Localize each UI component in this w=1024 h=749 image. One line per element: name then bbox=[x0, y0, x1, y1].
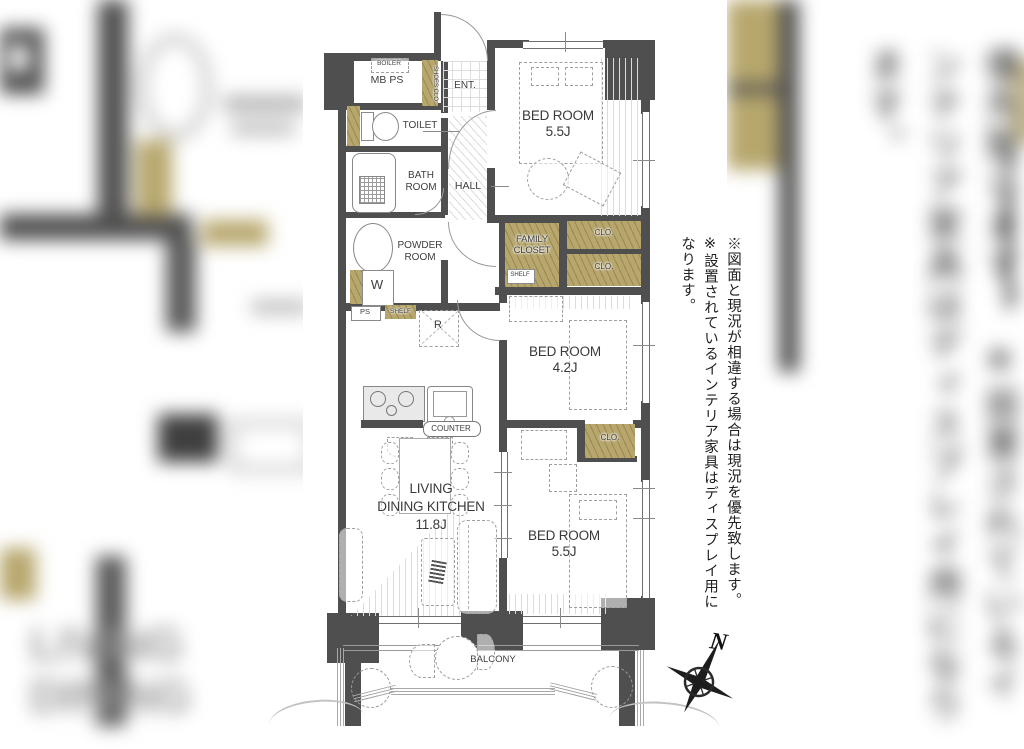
planting-bush bbox=[351, 668, 391, 708]
stove-burner bbox=[398, 391, 414, 407]
blur-wall bbox=[727, 84, 779, 94]
powder-room-label: POWDER ROOM bbox=[387, 240, 453, 263]
stove bbox=[363, 386, 425, 422]
door-tick bbox=[494, 472, 512, 473]
blur-notes-text: ※図面と現況が相違する場合は現況を優先致します。 ※設置されているインテリア家具… bbox=[855, 46, 1024, 726]
hall-label: HALL bbox=[443, 180, 493, 192]
window-tick bbox=[633, 345, 655, 346]
blur-text-blob bbox=[250, 300, 310, 314]
blur-closet bbox=[136, 140, 172, 216]
bedroom3-label: BED ROOM 5.5J bbox=[499, 528, 629, 559]
leader-line bbox=[423, 131, 459, 132]
wall-segment bbox=[507, 420, 583, 428]
bedroom3-size: 5.5J bbox=[499, 544, 629, 560]
background-blur-right: ※図面と現況が相違する場合は現況を優先致します。 ※設置されているインテリア家具… bbox=[727, 0, 1024, 726]
wall-segment bbox=[441, 118, 448, 215]
entrance-label: ENT. bbox=[443, 80, 487, 92]
note-line-2: ※設置されているインテリア家具はディスプレイ用になります。 bbox=[679, 236, 718, 610]
window-tick bbox=[633, 488, 655, 489]
sofa bbox=[457, 520, 497, 614]
window bbox=[642, 480, 650, 598]
washer-panel bbox=[350, 270, 362, 304]
wall-segment bbox=[338, 146, 445, 152]
blur-closet bbox=[0, 548, 36, 600]
leader-line bbox=[491, 186, 509, 187]
dining-chair bbox=[381, 442, 399, 464]
bedroom1-size: 5.5J bbox=[491, 124, 625, 140]
closet-top-2-label: CLO. bbox=[567, 262, 641, 271]
bedroom2-size: 4.2J bbox=[503, 360, 627, 376]
bedroom1-label: BED ROOM 5.5J bbox=[491, 108, 625, 139]
blur-toilet bbox=[138, 34, 212, 140]
wall-segment bbox=[495, 287, 650, 295]
family-closet-label: FAMILY CLOSET bbox=[499, 235, 565, 257]
wall-segment bbox=[441, 260, 448, 311]
tv-remote bbox=[428, 560, 447, 584]
closet-bottom-label: CLO. bbox=[585, 433, 635, 442]
window bbox=[523, 616, 601, 624]
window bbox=[523, 41, 603, 49]
powder-label-line1: POWDER bbox=[387, 240, 453, 252]
side-table bbox=[549, 464, 577, 492]
counter-edge bbox=[361, 420, 423, 428]
blur-stove bbox=[158, 414, 218, 462]
background-blur-left: LIVING DINING bbox=[0, 0, 310, 726]
wall-segment bbox=[641, 401, 650, 482]
window bbox=[379, 616, 461, 624]
blur-closet bbox=[727, 94, 779, 170]
planting-bush bbox=[591, 666, 633, 708]
balcony-label: BALCONY bbox=[453, 655, 533, 666]
blur-wall bbox=[166, 240, 196, 332]
sofa-cushion-line bbox=[468, 525, 469, 609]
fridge-label: R bbox=[419, 319, 457, 332]
balcony-chair bbox=[409, 644, 435, 678]
mbps-label: MB PS bbox=[351, 74, 423, 86]
bathroom-label-line2: ROOM bbox=[399, 182, 443, 194]
counter-label: COUNTER bbox=[423, 424, 479, 433]
blur-ldk-text: LIVING DINING bbox=[30, 618, 270, 722]
bathroom-label-line1: BATH bbox=[399, 170, 443, 182]
wall-pillar bbox=[327, 613, 379, 663]
stove-burner bbox=[370, 391, 386, 407]
bed-pillow bbox=[579, 500, 617, 520]
bath-mat bbox=[359, 176, 385, 204]
bed-pillow bbox=[531, 67, 559, 86]
blur-wall bbox=[779, 0, 799, 372]
window-tick bbox=[633, 518, 655, 519]
blur-sink bbox=[230, 420, 312, 472]
bed-pillow bbox=[565, 67, 593, 86]
blur-text-blob bbox=[222, 96, 308, 112]
wall-segment bbox=[487, 48, 495, 110]
desk-outline bbox=[521, 430, 567, 460]
window-tick bbox=[565, 32, 566, 52]
sink-basin bbox=[433, 391, 467, 417]
desk-outline bbox=[509, 296, 563, 322]
family-closet-line2: CLOSET bbox=[499, 246, 565, 257]
door-arc bbox=[457, 300, 500, 341]
family-shelf-label: SHELF bbox=[507, 272, 533, 279]
low-table bbox=[421, 538, 455, 606]
ldk-line1: LIVING bbox=[331, 480, 531, 498]
wall-segment bbox=[338, 212, 445, 218]
ldk-line2: DINING KITCHEN bbox=[331, 498, 531, 516]
ps-label: PS bbox=[351, 308, 379, 317]
bedroom3-name: BED ROOM bbox=[499, 528, 629, 544]
disclaimer-notes: ※図面と現況が相違する場合は現況を優先致します。 ※設置されているインテリア家具… bbox=[675, 236, 744, 624]
round-table bbox=[527, 158, 569, 200]
wall-segment bbox=[499, 558, 507, 618]
door-arc bbox=[448, 222, 496, 267]
blur-closet bbox=[202, 220, 268, 246]
ldk-label: LIVING DINING KITCHEN 11.8J bbox=[331, 480, 531, 534]
closet-top-1-label: CLO. bbox=[567, 228, 641, 237]
balcony-rail bbox=[391, 688, 555, 696]
bedroom2-label: BED ROOM 4.2J bbox=[503, 344, 627, 375]
floorplan-page: { "plan": { "labels": { "boiler": "BOILE… bbox=[0, 0, 1024, 726]
tv-board bbox=[339, 528, 363, 602]
bedroom1-name: BED ROOM bbox=[491, 108, 625, 124]
boiler-label: BOILER bbox=[371, 60, 407, 67]
compass-north-label: N bbox=[707, 628, 730, 657]
shoes-closet-label: SHOES CLO. bbox=[422, 62, 438, 106]
shelf-label: SHELF bbox=[385, 308, 416, 315]
window bbox=[642, 302, 650, 403]
blur-wall bbox=[98, 0, 128, 240]
blur-text-blob bbox=[230, 122, 296, 135]
bathroom-label: BATH ROOM bbox=[399, 170, 443, 193]
compass-icon: N bbox=[653, 626, 749, 726]
balcony-rail bbox=[549, 682, 598, 701]
blur-wall bbox=[0, 214, 192, 240]
dining-chair bbox=[451, 442, 469, 464]
toilet-counter bbox=[347, 106, 360, 146]
stove-burner bbox=[386, 405, 397, 416]
washer-label: W bbox=[362, 278, 392, 293]
floorplan-foreground: BOILER MB PS SHOES CLO. ENT. TOILET BATH… bbox=[303, 0, 727, 726]
toilet-label: TOILET bbox=[397, 120, 443, 132]
wall-segment bbox=[633, 420, 650, 428]
blur-fixture bbox=[10, 44, 28, 72]
wall-segment bbox=[434, 12, 441, 61]
bedroom2-name: BED ROOM bbox=[503, 344, 627, 360]
toilet-bowl bbox=[372, 112, 399, 141]
powder-label-line2: ROOM bbox=[387, 252, 453, 264]
blur-closet bbox=[727, 0, 779, 84]
note-line-1: ※図面と現況が相違する場合は現況を優先致します。 bbox=[725, 236, 741, 608]
door-arc bbox=[441, 14, 488, 61]
